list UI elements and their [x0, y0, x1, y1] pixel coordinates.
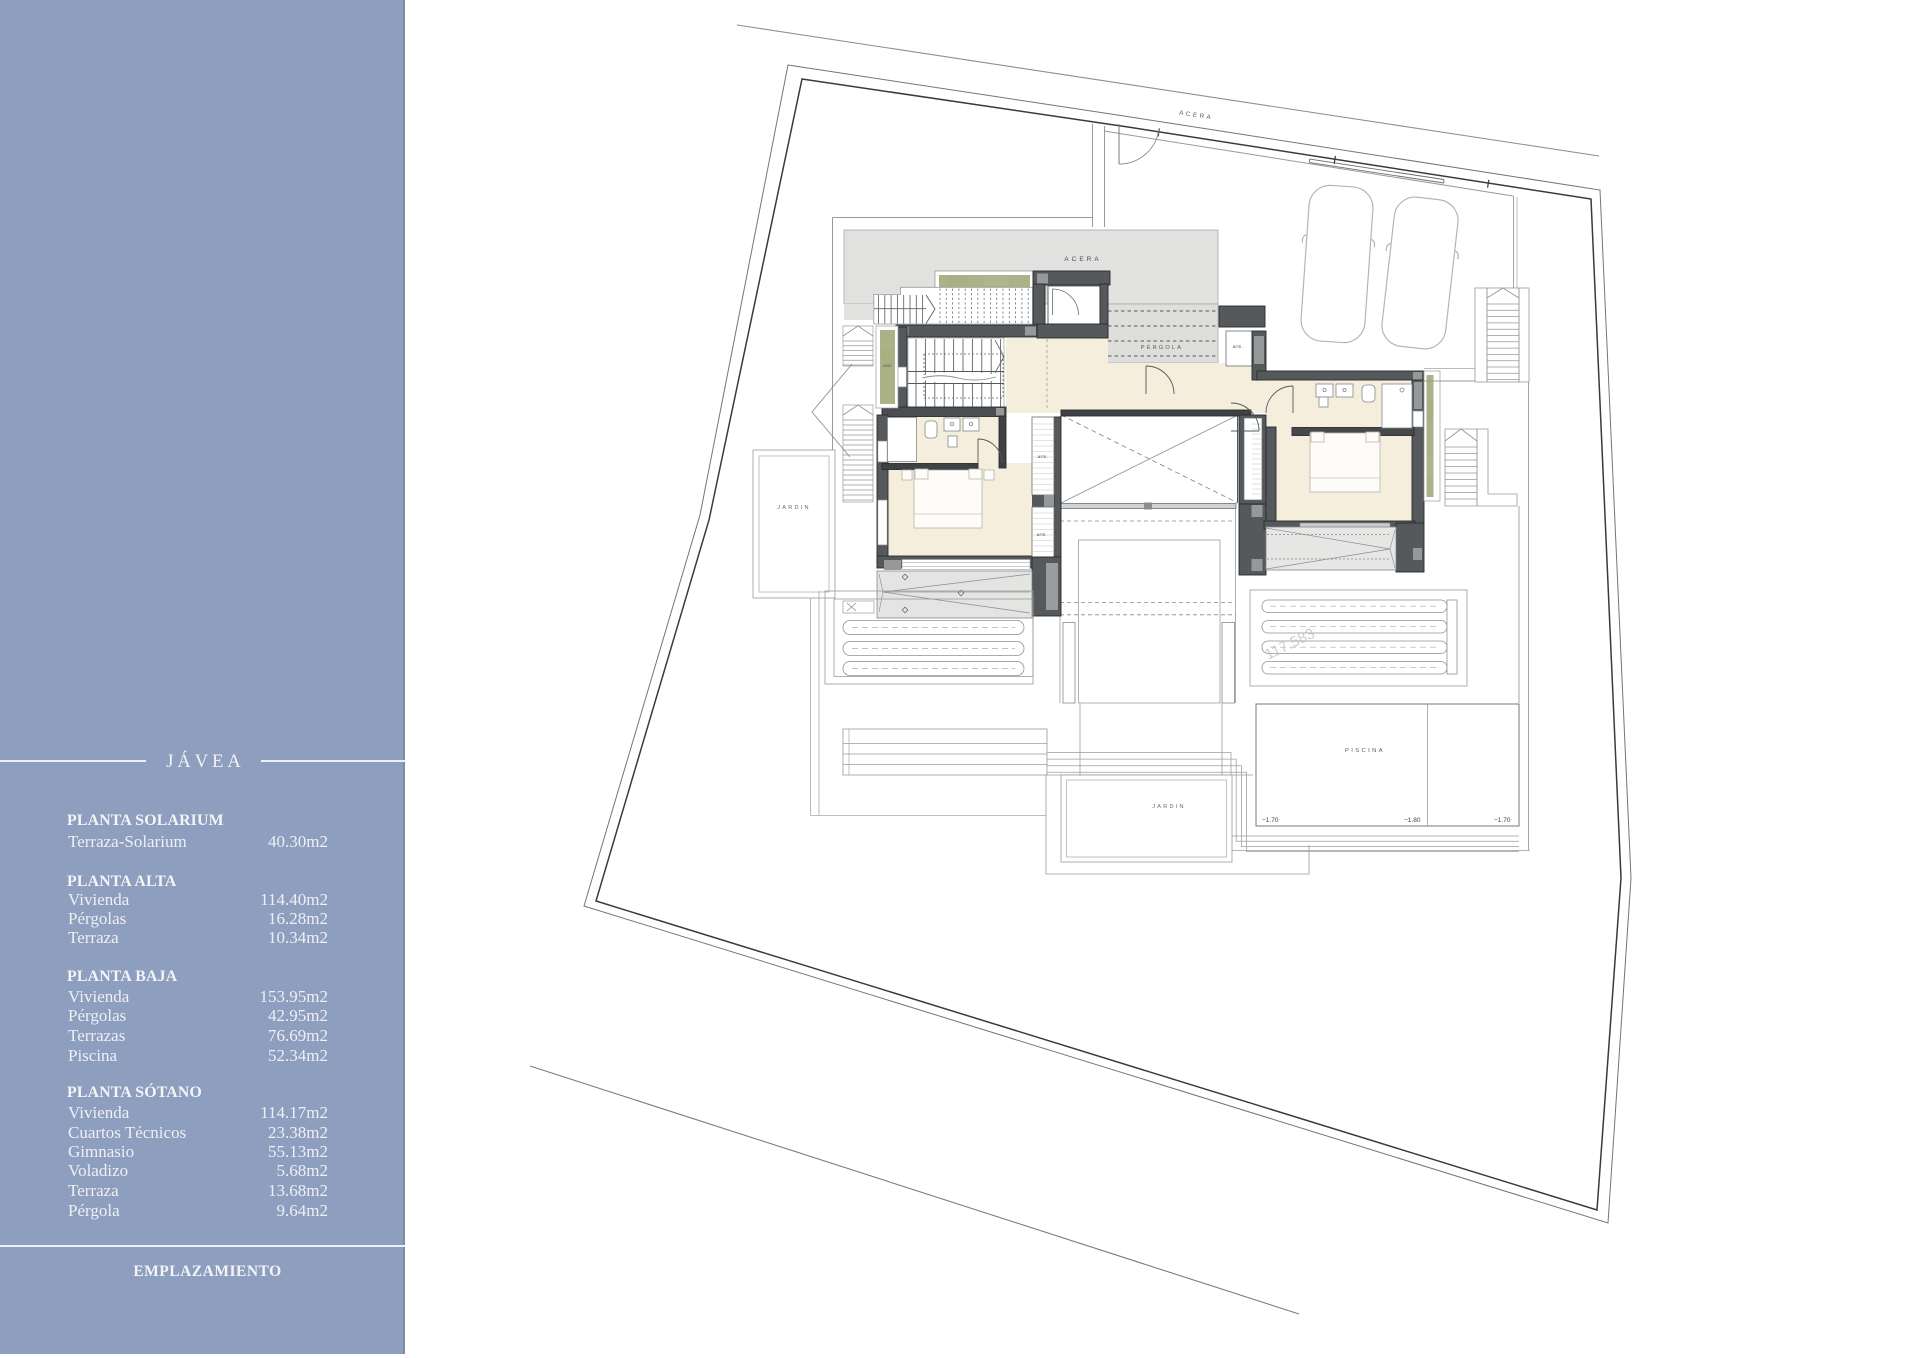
svg-text:arm.: arm. [1038, 454, 1049, 459]
svg-text:ACERA: ACERA [1179, 109, 1214, 121]
svg-text:arm.: arm. [1037, 532, 1048, 537]
svg-text:ACERA: ACERA [1064, 256, 1101, 263]
svg-text:−1.80: −1.80 [1404, 817, 1421, 824]
svg-text:PISCINA: PISCINA [1345, 748, 1385, 754]
svg-text:−1.70: −1.70 [1262, 817, 1279, 824]
svg-text:JARDIN: JARDIN [1152, 804, 1185, 810]
svg-text:JARD.: JARD. [882, 364, 892, 368]
svg-text:arm.: arm. [1233, 344, 1244, 349]
svg-text:−1.70: −1.70 [1494, 817, 1511, 824]
svg-text:JARDIN: JARDIN [777, 505, 810, 511]
svg-text:PÉRGOLA: PÉRGOLA [1141, 344, 1183, 351]
